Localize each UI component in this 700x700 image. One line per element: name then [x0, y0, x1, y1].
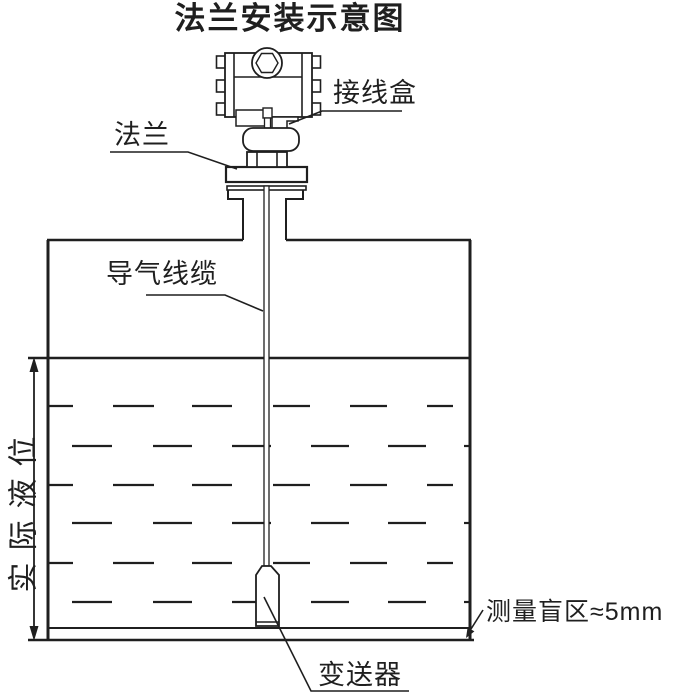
flange-leader — [110, 152, 237, 169]
air-cable-leader — [146, 295, 263, 311]
diagram-canvas: 法兰安装示意图 接线盒 法兰 导气线缆 实际液位 测量盲区≈5mm 变送器 — [0, 0, 700, 700]
transmitter-label: 变送器 — [318, 661, 402, 691]
tank-outline — [28, 240, 474, 640]
hex-nut — [247, 152, 287, 167]
conduit-entry — [236, 110, 266, 126]
flange-plate — [226, 167, 307, 182]
flange-label: 法兰 — [114, 121, 170, 151]
process-connection-ball — [243, 128, 299, 151]
actual-level-label: 实际液位 — [8, 419, 41, 599]
air-cable-label: 导气线缆 — [106, 260, 218, 290]
transmitter-probe — [256, 566, 279, 626]
transmitter-housing — [217, 48, 321, 167]
diagram-title: 法兰安装示意图 — [140, 2, 440, 36]
junction-box-label: 接线盒 — [333, 79, 417, 109]
dome-hex-facet — [256, 54, 278, 73]
blind-zone-label: 测量盲区≈5mm — [486, 599, 663, 627]
air-guide-cable — [264, 186, 269, 566]
vent-plug-head — [263, 108, 272, 118]
